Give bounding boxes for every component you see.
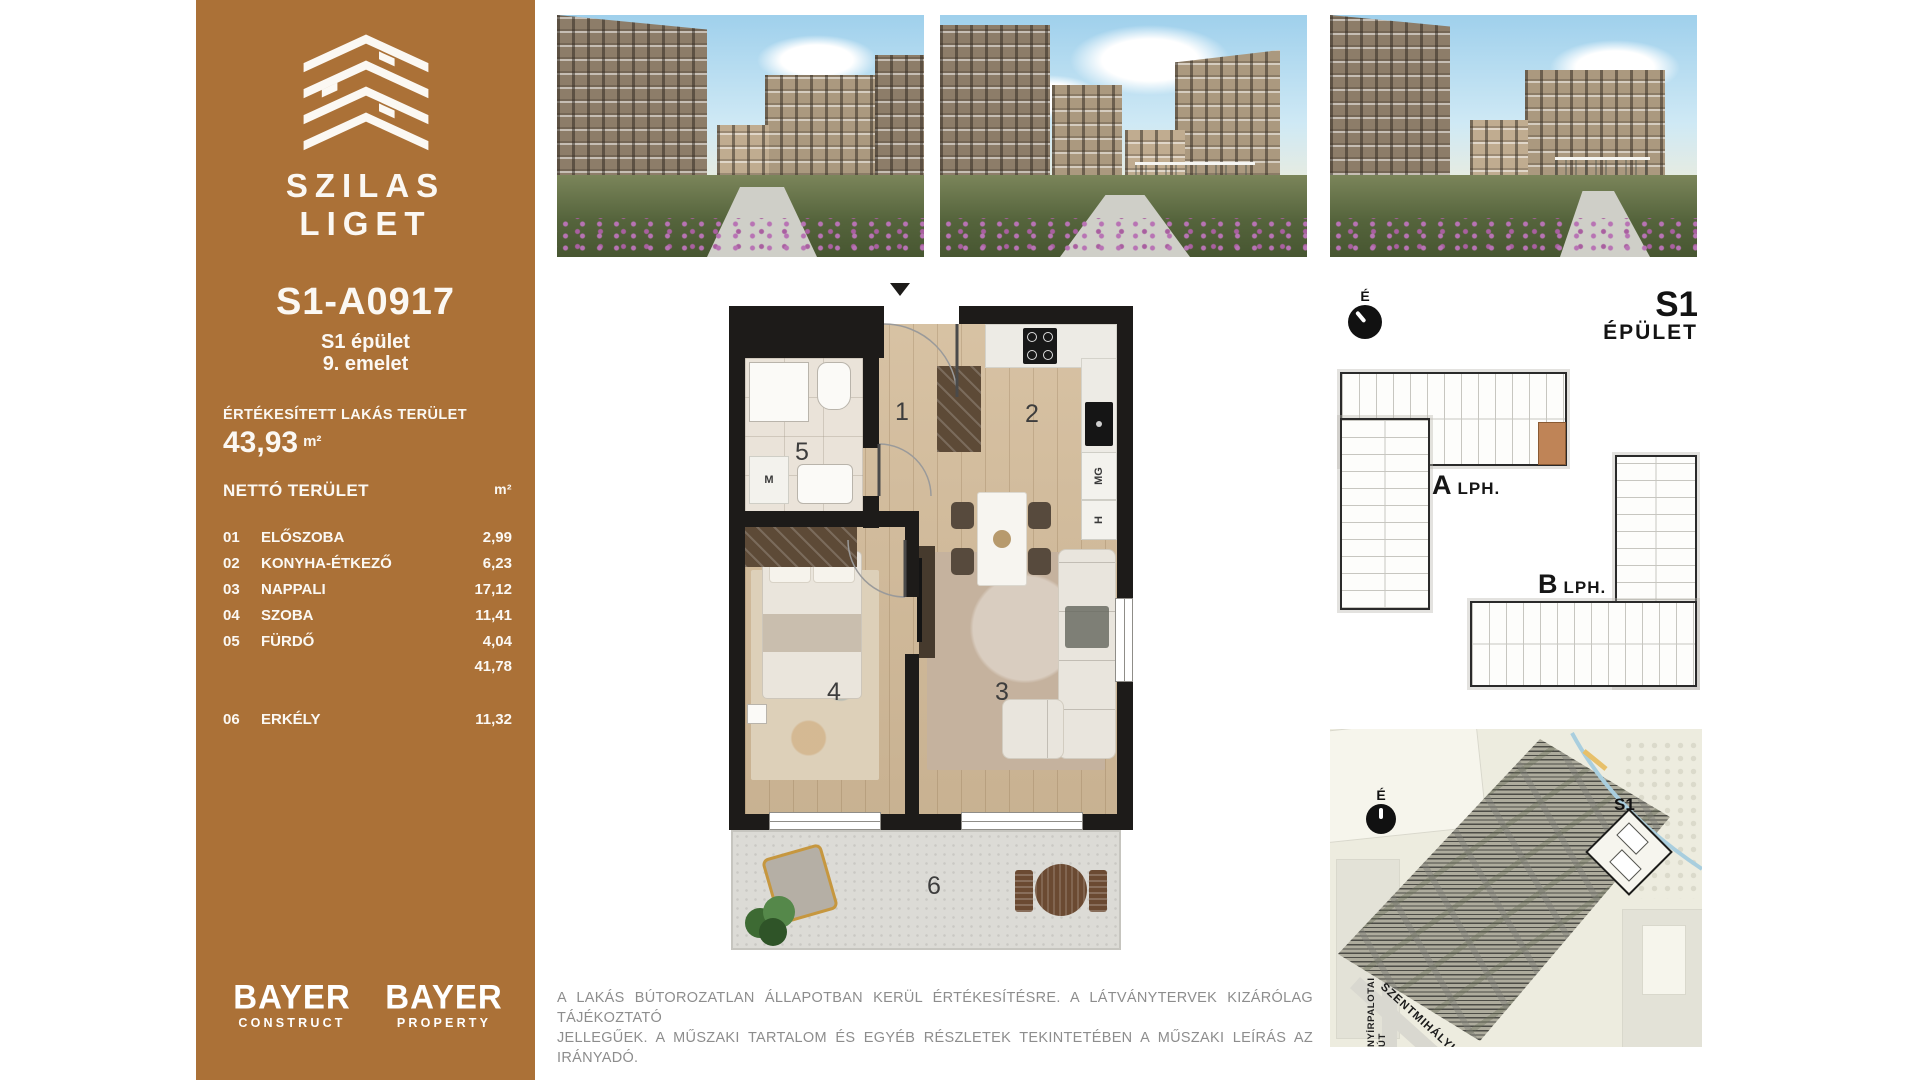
bayer-construct-logo: BAYER CONSTRUCT [223,980,361,1030]
apartment-floor: 9. emelet [196,353,535,376]
row-num: 05 [223,633,261,650]
site-map: S1 É NYÍRPALOTAI ÚT SZENTMIHÁLYI ÚT [1330,729,1702,1047]
room-number-bath: 5 [795,438,809,467]
room-number-living: 3 [995,678,1009,707]
table-row: 01 ELŐSZOBA 2,99 [223,525,512,551]
balcony: 6 [731,830,1121,950]
room-area-table: 01 ELŐSZOBA 2,99 02 KONYHA-ÉTKEZŐ 6,23 0… [223,525,512,733]
flower-bed [1330,218,1697,257]
row-name: FÜRDŐ [261,633,483,650]
apartment-building: S1 épület [196,331,535,354]
stair-a-letter: A [1432,470,1452,500]
apartment-floor-plan: MG H M [729,306,1133,954]
keyplan-b-bottom-wing [1470,601,1697,687]
stair-b-text: LPH. [1564,578,1607,597]
flower-bed [557,218,924,257]
row-num: 01 [223,529,261,546]
sold-area-unit: m² [303,433,321,450]
room-number-hall: 1 [895,398,909,427]
balcony-chair [1089,870,1107,912]
row-area: 11,32 [475,711,512,728]
building-compass: É [1348,288,1382,339]
bayer-property-logo: BAYER PROPERTY [375,980,513,1030]
net-area-unit: m² [494,481,512,501]
row-area: 4,04 [483,633,512,650]
bayer-property-bottom: PROPERTY [375,1016,513,1030]
keyplan-b: BLPH. [1470,455,1700,690]
building-title-sub: ÉPÜLET [1520,321,1698,345]
disclaimer-line-2: JELLEGŰEK. A MŰSZAKI TARTALOM ÉS EGYÉB R… [557,1028,1313,1068]
row-num: 02 [223,555,261,572]
row-name: ELŐSZOBA [261,529,483,546]
site-compass: É [1366,787,1396,834]
row-num: 06 [223,711,261,728]
row-area: 11,41 [475,607,512,624]
disclaimer-line-1: A LAKÁS BÚTOROZATLAN ÁLLAPOTBAN KERÜL ÉR… [557,988,1313,1028]
north-label: É [1348,288,1382,304]
building-title-main: S1 [1520,288,1698,321]
table-row: 05 FÜRDŐ 4,04 [223,628,512,654]
net-total-row: 41,78 [223,654,512,680]
balcony-chair [1015,870,1033,912]
north-label: É [1366,787,1396,803]
table-row: 02 KONYHA-ÉTKEZŐ 6,23 [223,551,512,577]
bayer-construct-top: BAYER [223,979,361,1014]
sold-area-label: ÉRTÉKESÍTETT LAKÁS TERÜLET [223,407,513,423]
net-total-value: 41,78 [474,658,512,675]
row-name: SZOBA [261,607,475,624]
disclaimer: A LAKÁS BÚTOROZATLAN ÁLLAPOTBAN KERÜL ÉR… [557,988,1313,1068]
bayer-property-top: BAYER [375,979,513,1014]
row-name: KONYHA-ÉTKEZŐ [261,555,483,572]
stair-b-label: BLPH. [1538,569,1606,600]
balcony-table [1035,864,1087,916]
bayer-construct-bottom: CONSTRUCT [223,1016,361,1030]
stair-b-letter: B [1538,569,1558,599]
entrance-arrow-icon [890,283,910,296]
sidebar: SZILAS LIGET S1-A0917 S1 épület 9. emele… [196,0,535,1080]
net-area-header: NETTÓ TERÜLET m² [223,481,512,501]
sold-area-number: 43,93 [223,426,298,459]
keyplan-a-left-wing [1340,418,1430,610]
row-num: 04 [223,607,261,624]
row-area: 2,99 [483,529,512,546]
developer-logos: BAYER CONSTRUCT BAYER PROPERTY [223,980,513,1030]
flower-bed [940,218,1307,257]
datasheet-page: SZILAS LIGET S1-A0917 S1 épület 9. emele… [0,0,1920,1080]
site-s1-tag: S1 [1614,795,1635,815]
compass-icon [1366,804,1396,834]
row-num: 03 [223,581,261,598]
compass-icon [1348,305,1382,339]
table-row: 03 NAPPALI 17,12 [223,577,512,603]
row-name: NAPPALI [261,581,474,598]
balcony-plant [741,890,801,948]
render-photo-2 [940,15,1307,257]
room-number-kitchen: 2 [1025,400,1039,429]
apartment-id: S1-A0917 [196,281,535,324]
balcony-row: 06 ERKÉLY 11,32 [223,707,512,733]
row-name: ERKÉLY [261,711,475,728]
room-number-bedroom: 4 [827,678,841,707]
sold-area-value: 43,93m² [223,426,321,460]
render-photo-3 [1330,15,1697,257]
render-photo-1 [557,15,924,257]
szilas-liget-logo [288,28,444,158]
street-name-vertical: NYÍRPALOTAI ÚT [1366,965,1388,1047]
building-title: S1 ÉPÜLET [1520,288,1698,345]
row-area: 17,12 [474,581,512,598]
brand-word-szilas: SZILAS [196,167,535,205]
door-swings [729,306,1133,830]
net-area-label: NETTÓ TERÜLET [223,481,369,501]
row-area: 6,23 [483,555,512,572]
room-number-balcony: 6 [927,872,941,901]
table-row: 04 SZOBA 11,41 [223,602,512,628]
brand-word-liget: LIGET [196,205,535,243]
